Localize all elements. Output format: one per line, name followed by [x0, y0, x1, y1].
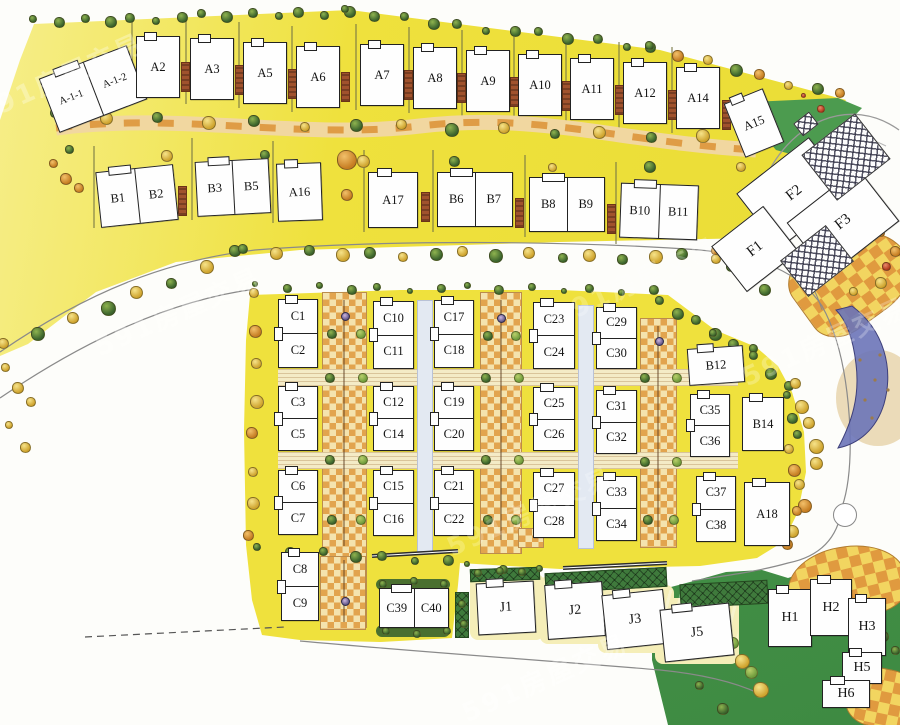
tree-icon: [788, 464, 801, 477]
tree-icon: [787, 413, 798, 424]
roof-notch: [277, 580, 286, 594]
building-label: B5: [244, 179, 259, 195]
tree-icon: [249, 288, 259, 298]
tree-icon: [65, 145, 74, 154]
roof-notch: [380, 466, 393, 475]
building-label: B2: [148, 186, 164, 202]
tree-icon: [377, 551, 387, 561]
building-unit: C19: [435, 387, 473, 418]
tree-icon: [337, 150, 357, 170]
tree-icon: [248, 8, 258, 18]
building-a17: A17: [368, 172, 418, 228]
building-c33-c34: C33C34: [596, 476, 637, 541]
roof-notch: [430, 412, 439, 425]
tree-icon: [783, 391, 791, 399]
roof-notch: [441, 466, 454, 475]
building-label: C8: [293, 562, 308, 577]
roof-notch: [529, 499, 538, 513]
roof-notch: [849, 648, 862, 657]
lamp-post-icon: [655, 337, 664, 346]
building-label: F1: [744, 237, 767, 260]
tree-icon: [696, 129, 710, 143]
building-label: C27: [544, 481, 565, 496]
building-a16: A16: [276, 162, 323, 222]
building-label: J5: [690, 624, 704, 641]
roof-notch: [377, 168, 392, 177]
building-label: H1: [781, 610, 798, 626]
building-c6-c7: C6C7: [278, 470, 318, 535]
building-unit: C14: [374, 418, 413, 450]
roof-notch: [391, 584, 412, 593]
tree-icon: [835, 88, 845, 98]
building-unit: B5: [231, 159, 270, 214]
road-edge: [0, 289, 256, 398]
tree-icon: [445, 123, 459, 137]
tree-icon: [398, 252, 408, 262]
building-c21-c22: C21C22: [434, 470, 474, 536]
tree-icon: [643, 515, 653, 525]
building-c27-c28: C27C28: [533, 472, 575, 538]
building-label: B11: [668, 204, 689, 220]
building-c25-c26: C25C26: [533, 387, 575, 451]
tree-icon: [197, 9, 206, 18]
roof-notch: [285, 466, 298, 475]
tree-icon: [152, 17, 160, 25]
roof-notch: [603, 472, 616, 481]
building-label: F3: [832, 210, 855, 233]
tree-icon: [593, 126, 606, 139]
tree-icon: [1, 363, 10, 372]
building-label: C28: [544, 514, 565, 529]
building-unit: C17: [435, 301, 473, 334]
tree-icon: [518, 568, 526, 576]
building-unit: A8: [414, 48, 456, 108]
tree-icon: [357, 155, 370, 168]
building-c37-c38: C37C38: [696, 476, 736, 542]
tree-icon: [20, 442, 31, 453]
building-j1: J1: [476, 581, 537, 636]
tree-icon: [238, 244, 248, 254]
tree-icon: [350, 119, 363, 132]
building-a3: A3: [190, 38, 234, 100]
tree-icon: [784, 81, 793, 90]
building-c17-c18: C17C18: [434, 300, 474, 368]
roof-notch: [752, 478, 766, 487]
tree-icon: [765, 368, 777, 380]
building-label: C38: [706, 518, 727, 533]
building-label: H2: [822, 600, 839, 616]
building-label: A17: [382, 193, 404, 208]
building-a8: A8: [413, 47, 457, 109]
building-label: H6: [837, 686, 854, 702]
tree-icon: [358, 373, 368, 383]
building-unit: C3: [279, 387, 317, 418]
tree-icon: [849, 287, 858, 296]
tree-icon: [327, 329, 337, 339]
roof-notch: [368, 40, 382, 49]
tree-icon: [74, 183, 84, 193]
building-label: C37: [706, 485, 727, 500]
roof-notch: [207, 156, 230, 166]
roof-notch: [817, 575, 830, 584]
tree-icon: [243, 530, 254, 541]
building-c8-c9: C8C9: [281, 552, 319, 621]
tree-icon: [31, 327, 45, 341]
tree-icon: [749, 351, 758, 360]
building-unit: C18: [435, 334, 473, 368]
building-unit: C1: [279, 300, 317, 333]
building-unit: B11: [658, 185, 698, 239]
building-label: J3: [628, 611, 642, 628]
tree-icon: [809, 439, 824, 454]
building-label: A7: [374, 68, 389, 83]
building-a14: A14: [676, 67, 720, 129]
tree-icon: [703, 55, 713, 65]
building-label: C35: [700, 403, 721, 418]
roof-notch: [578, 54, 592, 63]
building-label: C17: [444, 310, 465, 325]
building-label: C25: [544, 396, 565, 411]
tree-icon: [341, 189, 353, 201]
building-b12: B12: [687, 345, 745, 386]
building-unit: B8: [530, 178, 567, 231]
roof-notch: [529, 413, 538, 426]
building-unit: J2: [545, 582, 605, 639]
roof-notch: [684, 63, 698, 72]
tree-icon: [745, 666, 758, 679]
tree-icon: [801, 93, 806, 98]
building-label: C31: [606, 399, 627, 414]
building-label: A15: [741, 112, 767, 134]
roof-notch: [526, 50, 540, 59]
building-label: A-1-2: [101, 71, 128, 90]
plaza-dot: [870, 416, 873, 419]
tree-icon: [249, 325, 262, 338]
building-unit: A12: [624, 63, 666, 123]
tree-icon: [464, 282, 471, 289]
building-h2: H2: [810, 579, 852, 636]
roof-notch: [369, 328, 378, 342]
tree-icon: [316, 282, 323, 289]
building-b1-b2: B1B2: [95, 164, 178, 228]
roof-notch: [686, 419, 695, 432]
roof-notch: [634, 179, 658, 189]
building-label: A2: [150, 60, 165, 75]
tree-icon: [640, 373, 650, 383]
tree-icon: [29, 15, 37, 23]
tree-icon: [498, 122, 510, 134]
tree-icon: [325, 455, 335, 465]
roof-notch: [288, 548, 300, 557]
building-unit: C24: [534, 335, 574, 368]
building-unit: C32: [597, 422, 636, 454]
building-label: C12: [383, 395, 404, 410]
tree-icon: [428, 18, 440, 30]
tree-icon: [754, 69, 765, 80]
roof-notch: [304, 42, 318, 51]
tree-icon: [293, 7, 304, 18]
building-label: C29: [606, 315, 627, 330]
building-label: H3: [858, 619, 875, 635]
roof-notch: [274, 327, 283, 341]
building-label: C6: [291, 479, 306, 494]
tree-icon: [341, 5, 349, 13]
tree-icon: [793, 430, 802, 439]
building-unit: C25: [534, 388, 574, 419]
tree-icon: [640, 457, 650, 467]
roof-notch: [697, 390, 710, 399]
tree-icon: [200, 260, 214, 274]
tree-icon: [60, 173, 72, 185]
building-label: A12: [634, 86, 656, 101]
tree-icon: [536, 565, 543, 572]
building-unit: C38: [697, 509, 735, 542]
roof-notch: [369, 412, 378, 425]
tree-icon: [646, 132, 657, 143]
tree-icon: [369, 11, 380, 22]
tree-icon: [130, 286, 143, 299]
tree-icon: [54, 17, 65, 28]
tree-icon: [250, 395, 264, 409]
roof-notch: [485, 578, 503, 588]
tree-icon: [481, 455, 491, 465]
tree-icon: [221, 11, 233, 23]
building-label: C36: [700, 434, 721, 449]
tree-icon: [617, 254, 628, 265]
building-j2: J2: [544, 581, 606, 640]
building-unit: A10: [519, 55, 561, 115]
roof-notch: [474, 46, 488, 55]
building-unit: C28: [534, 505, 574, 538]
building-unit: C27: [534, 473, 574, 505]
building-label: C32: [606, 430, 627, 445]
tree-icon: [649, 250, 663, 264]
building-label: C16: [383, 512, 404, 527]
building-a2: A2: [136, 36, 180, 98]
roof-notch: [274, 412, 283, 425]
tree-icon: [430, 248, 443, 261]
tree-icon: [407, 288, 413, 294]
tree-icon: [784, 444, 794, 454]
building-j5: J5: [659, 602, 734, 662]
building-unit: B1: [96, 169, 139, 227]
tree-icon: [511, 331, 521, 341]
building-unit: C30: [597, 338, 636, 369]
building-label: H5: [853, 660, 870, 676]
tree-icon: [0, 338, 9, 349]
building-label: A6: [310, 70, 325, 85]
building-label: C19: [444, 395, 465, 410]
roof-notch: [749, 393, 762, 402]
tree-icon: [550, 129, 560, 139]
tree-icon: [792, 506, 802, 516]
tree-icon: [443, 555, 454, 566]
building-label: B6: [449, 192, 464, 207]
tree-icon: [795, 400, 809, 414]
tree-icon: [585, 284, 594, 293]
roof-notch: [830, 676, 845, 685]
tree-icon: [101, 301, 116, 316]
tree-icon: [358, 455, 368, 465]
building-c31-c32: C31C32: [596, 390, 637, 454]
building-unit: A16: [277, 163, 322, 220]
building-label: C10: [383, 311, 404, 326]
building-unit: A18: [745, 483, 789, 545]
roundabout-circle: [834, 504, 857, 527]
tree-icon: [812, 83, 824, 95]
tree-icon: [283, 284, 292, 293]
building-h6: H6: [822, 680, 870, 708]
building-a9: A9: [466, 50, 510, 112]
tree-icon: [803, 417, 815, 429]
tree-icon: [709, 329, 717, 337]
roof-notch: [380, 297, 393, 306]
building-unit: H5: [843, 653, 881, 683]
roof-notch: [776, 585, 790, 594]
roof-notch: [540, 383, 553, 392]
building-label: A14: [687, 91, 709, 106]
tree-icon: [548, 163, 557, 172]
building-unit: B7: [475, 173, 513, 226]
building-unit: C15: [374, 471, 413, 503]
building-unit: B2: [134, 165, 178, 223]
building-a12: A12: [623, 62, 667, 124]
tree-icon: [672, 50, 684, 62]
roof-notch: [603, 386, 616, 395]
building-unit: C37: [697, 477, 735, 509]
building-c1-c2: C1C2: [278, 299, 318, 368]
roof-notch: [285, 295, 298, 304]
building-unit: C26: [534, 419, 574, 451]
roof-notch: [251, 38, 265, 47]
roof-notch: [631, 58, 645, 67]
tree-icon: [483, 515, 493, 525]
tree-icon: [458, 600, 466, 608]
building-label: A5: [257, 66, 272, 81]
tree-icon: [481, 373, 491, 383]
tree-icon: [12, 382, 24, 394]
building-a18: A18: [744, 482, 790, 546]
tree-icon: [649, 285, 659, 295]
building-label: C40: [421, 601, 442, 616]
tree-icon: [177, 12, 188, 23]
roof-notch: [421, 43, 435, 52]
tree-icon: [810, 457, 823, 470]
roof-notch: [592, 332, 601, 345]
building-unit: A6: [297, 47, 339, 107]
building-unit: C35: [691, 395, 729, 425]
roof-notch: [542, 173, 565, 182]
building-unit: J1: [477, 582, 536, 635]
tree-icon: [891, 646, 900, 655]
tree-icon: [496, 567, 504, 575]
tree-icon: [736, 162, 746, 172]
roof-notch: [274, 496, 283, 509]
roof-notch: [703, 472, 716, 481]
building-label: J1: [499, 600, 512, 617]
lamp-post-icon: [497, 314, 506, 323]
roof-notch: [198, 34, 212, 43]
building-unit: C21: [435, 471, 473, 503]
building-b3-b5: B3B5: [195, 158, 272, 217]
roof-notch: [144, 32, 158, 41]
building-b8-b9: B8B9: [529, 177, 605, 232]
tree-icon: [449, 156, 460, 167]
lamp-post-icon: [341, 312, 350, 321]
building-unit: C29: [597, 308, 636, 338]
plaza-dot: [886, 388, 889, 391]
building-unit: A3: [191, 39, 233, 99]
building-label: C33: [606, 485, 627, 500]
building-b14: B14: [742, 397, 784, 451]
tree-icon: [356, 329, 366, 339]
tree-icon: [511, 515, 521, 525]
tree-icon: [356, 515, 366, 525]
tree-icon: [672, 373, 682, 383]
plaza-dot: [878, 353, 881, 356]
tree-icon: [373, 283, 381, 291]
building-c15-c16: C15C16: [373, 470, 414, 536]
tree-icon: [875, 277, 887, 289]
tree-icon: [125, 13, 135, 23]
tree-icon: [202, 116, 216, 130]
building-label: A10: [529, 78, 551, 93]
tree-icon: [890, 246, 900, 257]
tree-icon: [514, 455, 524, 465]
building-unit: H1: [769, 590, 811, 646]
tree-icon: [460, 620, 468, 628]
building-label: A11: [581, 82, 602, 97]
tree-icon: [379, 580, 387, 588]
roof-notch: [450, 168, 473, 177]
tree-icon: [483, 331, 493, 341]
building-j3: J3: [601, 589, 668, 650]
building-unit: B9: [567, 178, 605, 231]
roof-notch: [603, 303, 616, 312]
roof-notch: [692, 503, 701, 517]
building-unit: H3: [849, 599, 885, 655]
tree-icon: [759, 284, 771, 296]
building-unit: A17: [369, 173, 417, 227]
tree-icon: [514, 373, 524, 383]
building-unit: C34: [597, 508, 636, 540]
tree-icon: [246, 427, 258, 439]
building-unit: A11: [571, 59, 613, 119]
building-b10-b11: B10B11: [619, 183, 699, 241]
building-label: A18: [756, 507, 778, 522]
building-label: C2: [291, 343, 306, 358]
building-label: J2: [568, 602, 582, 619]
building-unit: B3: [196, 161, 234, 216]
roof-notch: [285, 382, 298, 391]
building-label: C1: [291, 309, 306, 324]
building-unit: A5: [244, 43, 286, 103]
tree-icon: [790, 378, 801, 389]
building-a7: A7: [360, 44, 404, 106]
building-label: C14: [383, 427, 404, 442]
building-c23-c24: C23C24: [533, 302, 575, 369]
building-unit: C9: [282, 586, 318, 620]
building-label: C20: [444, 427, 465, 442]
dashed-boundary: [85, 627, 285, 637]
roof-notch: [540, 298, 553, 307]
building-label: C21: [444, 479, 465, 494]
building-label: A-1-1: [58, 88, 85, 107]
tree-icon: [319, 547, 328, 556]
building-unit: C12: [374, 387, 413, 418]
tree-icon: [396, 119, 407, 130]
tree-icon: [5, 421, 13, 429]
